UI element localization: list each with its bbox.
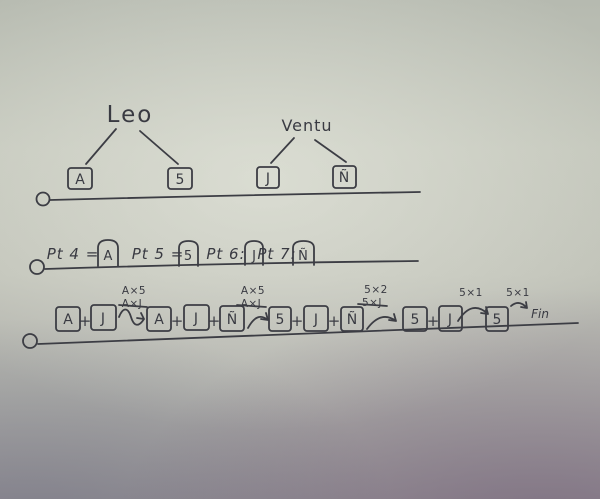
point-6-label: Pt 6:	[206, 245, 245, 263]
step-box-letter: A	[63, 312, 73, 328]
plus-sign: +	[427, 312, 440, 330]
tree-leo-label: Leo	[107, 102, 154, 128]
transition-1-crossed-annotation: A×J	[122, 298, 143, 310]
step-box-letter: J	[193, 311, 198, 327]
point-4-value: A	[104, 249, 113, 264]
baseline-1	[50, 192, 420, 200]
tree-ventu: Ventu J Ñ	[257, 116, 356, 188]
baseline-3-endpoint-circle	[23, 334, 37, 348]
plus-sign: +	[171, 312, 184, 330]
handwritten-diagram-photo: Leo A 5 Ventu J Ñ Pt 4 = A Pt 5 = 5 Pt 6…	[0, 0, 600, 499]
tree-leo-node-a-letter: A	[75, 172, 85, 188]
step-box-letter: J	[313, 312, 318, 328]
plus-sign: +	[291, 312, 304, 330]
plus-sign: +	[79, 312, 92, 330]
tree-ventu-node-j-letter: J	[265, 171, 270, 187]
tree-leo-right-branch-line	[140, 131, 178, 164]
tree-ventu-label: Ventu	[281, 116, 332, 135]
transition-3-arrow	[367, 314, 396, 329]
transition-2-crossed-annotation: A×J	[241, 298, 262, 310]
transition-3-crossed-annotation: 5×J	[362, 297, 382, 309]
transition-1-arrow	[119, 310, 144, 325]
step-box-letter: 5	[411, 312, 420, 328]
tree-leo-node-5-letter: 5	[176, 172, 185, 188]
transition-5-annotation: 5×1	[506, 287, 530, 299]
step-box-letter: 5	[276, 312, 285, 328]
step-box-letter: A	[154, 312, 164, 328]
transition-4-annotation: 5×1	[459, 287, 483, 299]
tree-ventu-right-branch-line	[315, 140, 346, 162]
transition-5-arrow	[511, 302, 527, 308]
end-label-fin: Fin	[531, 307, 549, 321]
step-box-letter: Ñ	[347, 311, 357, 328]
point-5-value: 5	[184, 249, 192, 264]
transition-3-annotation: 5×2	[364, 284, 388, 296]
tree-ventu-node-n-letter: Ñ	[339, 169, 349, 186]
step-box-letter: J	[100, 311, 105, 327]
point-4-label: Pt 4 =	[47, 245, 100, 263]
tree-leo: Leo A 5	[68, 102, 192, 189]
point-7-label: Pt 7:	[257, 245, 296, 263]
baseline-2-endpoint-circle	[30, 260, 44, 274]
transition-2-arrow	[248, 313, 268, 328]
step-box-letter: Ñ	[227, 311, 237, 328]
tree-ventu-left-branch-line	[271, 138, 294, 163]
point-5-label: Pt 5 =	[132, 245, 185, 263]
diagram-canvas: Leo A 5 Ventu J Ñ Pt 4 = A Pt 5 = 5 Pt 6…	[0, 0, 600, 499]
point-7-value: Ñ	[298, 248, 308, 264]
transition-2-annotation: A×5	[241, 285, 265, 297]
step-box-letter: J	[447, 312, 452, 328]
plus-sign: +	[328, 312, 341, 330]
transition-1-annotation: A×5	[122, 285, 146, 297]
plus-sign: +	[208, 312, 221, 330]
points-row: Pt 4 = A Pt 5 = 5 Pt 6: J Pt 7: Ñ	[47, 240, 314, 266]
steps-row: A + J A×5 A×J A + J + Ñ A×5 A×J 5 + J + …	[56, 284, 549, 331]
baseline-3	[38, 323, 578, 344]
baseline-1-endpoint-circle	[37, 193, 50, 206]
point-6-value: J	[251, 249, 256, 264]
tree-leo-left-branch-line	[86, 129, 116, 164]
